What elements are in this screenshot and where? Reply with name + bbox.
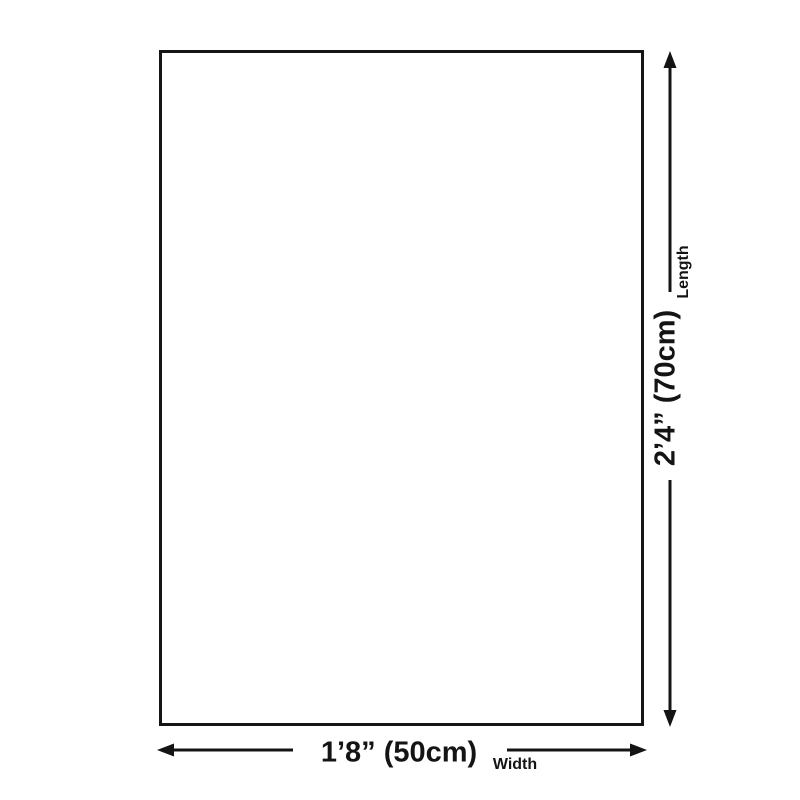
length-value: 2’4” (70cm) [650,310,683,466]
width-value: 1’8” (50cm) [321,737,477,770]
size-rectangle [159,50,644,726]
width-label: Width [493,756,537,774]
length-label: Length [675,245,693,298]
product-size-diagram: 2’4” (70cm) Length 1’8” (50cm) Width [0,0,800,800]
